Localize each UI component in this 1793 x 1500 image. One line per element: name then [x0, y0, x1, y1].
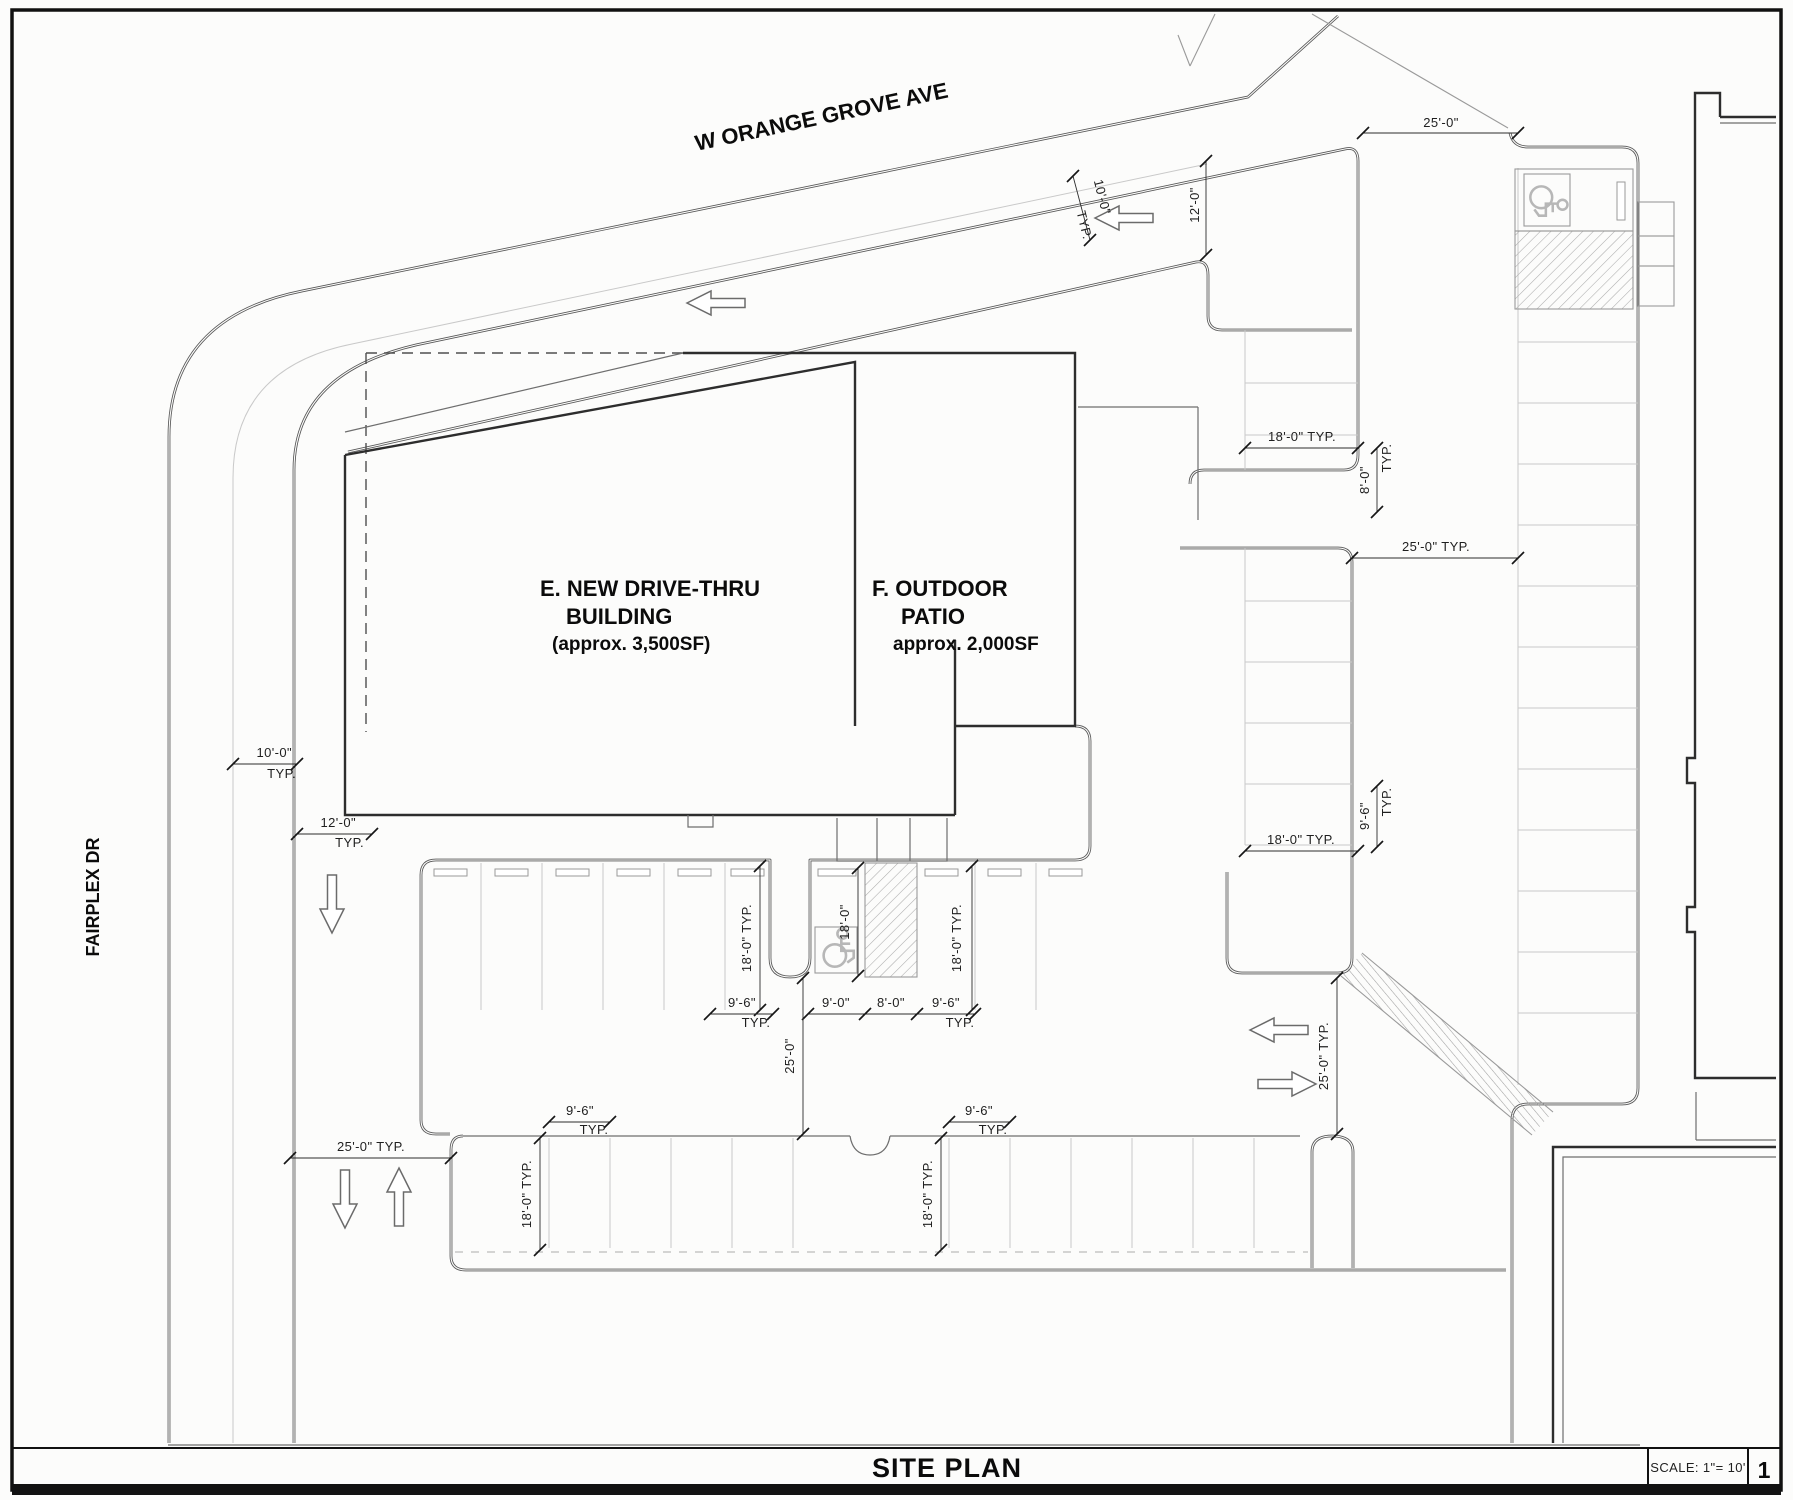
row-island-bump — [850, 1136, 890, 1155]
sheet-title: SITE PLAN — [872, 1453, 1022, 1483]
svg-text:TYP.: TYP. — [946, 1015, 975, 1030]
svg-text:18'-0" TYP.: 18'-0" TYP. — [519, 1160, 534, 1228]
stoop-1 — [1638, 202, 1674, 236]
site-plan-drawing: W ORANGE GROVE AVE FAIRPLEX DR — [0, 0, 1793, 1500]
stoop-3 — [1638, 266, 1674, 306]
wheelchair-icon-right — [1530, 186, 1567, 215]
svg-text:25'-0": 25'-0" — [782, 1038, 797, 1074]
existing-building-right — [1687, 93, 1776, 1140]
svg-text:TYP.: TYP. — [267, 766, 296, 781]
building-entry-notch — [688, 815, 713, 827]
flow-arrow-down-west-lane — [320, 875, 344, 933]
parking-row-lower — [455, 1136, 1308, 1252]
street-top-label: W ORANGE GROVE AVE — [693, 78, 950, 156]
flow-arrow-up-entrance — [387, 1168, 411, 1226]
svg-text:18'-0": 18'-0" — [837, 904, 852, 940]
building-label-line1: E. NEW DRIVE-THRU — [540, 576, 760, 601]
flow-arrow-left-east-aisle — [1250, 1018, 1308, 1042]
svg-text:18'-0" TYP.: 18'-0" TYP. — [1267, 832, 1335, 847]
street-top-orange-grove: W ORANGE GROVE AVE — [169, 14, 1508, 1443]
patio-label-line1: F. OUTDOOR — [872, 576, 1008, 601]
svg-text:25'-0" TYP.: 25'-0" TYP. — [337, 1139, 405, 1154]
svg-text:25'-0" TYP.: 25'-0" TYP. — [1316, 1022, 1331, 1090]
svg-text:TYP.: TYP. — [1074, 209, 1096, 241]
accessible-aisle-hatch-right — [1515, 231, 1633, 309]
accessible-aisle-hatch — [865, 863, 917, 977]
street-left-fairplex: FAIRPLEX DR — [83, 837, 103, 956]
svg-text:8'-0": 8'-0" — [1357, 466, 1372, 494]
sheet-number: 1 — [1758, 1457, 1771, 1483]
svg-text:8'-0": 8'-0" — [877, 995, 905, 1010]
building-label-line3: (approx. 3,500SF) — [552, 634, 710, 655]
flow-arrow-down-entrance — [333, 1170, 357, 1228]
svg-text:18'-0" TYP.: 18'-0" TYP. — [1268, 429, 1336, 444]
site-plan-sheet: W ORANGE GROVE AVE FAIRPLEX DR — [0, 0, 1793, 1500]
sheet-scale: SCALE: 1"= 10' — [1650, 1460, 1745, 1475]
site-curbs — [168, 133, 1640, 1445]
drive-thru-lane-curb — [345, 353, 683, 432]
setback-dashed-line — [366, 353, 683, 732]
svg-text:10'-0": 10'-0" — [1091, 178, 1114, 216]
svg-text:18'-0" TYP.: 18'-0" TYP. — [739, 904, 754, 972]
svg-text:TYP.: TYP. — [580, 1122, 609, 1137]
building-label-line2: BUILDING — [566, 604, 672, 629]
parking-bays-east — [1245, 330, 1358, 845]
patio-label-line3: approx. 2,000SF — [893, 634, 1039, 655]
svg-text:25'-0": 25'-0" — [1423, 115, 1459, 130]
existing-building-bottom-right — [1553, 1147, 1776, 1443]
svg-text:9'-6": 9'-6" — [965, 1103, 993, 1118]
svg-text:TYP.: TYP. — [1379, 444, 1394, 473]
svg-text:12'-0": 12'-0" — [1187, 187, 1202, 223]
flow-arrow-west-aisle — [687, 291, 745, 315]
parking-row-upper — [434, 863, 1082, 1010]
stoop-2 — [1638, 236, 1674, 266]
outdoor-patio: F. OUTDOOR PATIO approx. 2,000SF — [872, 576, 1039, 655]
svg-text:TYP.: TYP. — [1379, 788, 1394, 817]
flow-arrow-right-east-aisle — [1258, 1072, 1316, 1096]
crosswalk — [1341, 953, 1553, 1135]
flow-arrows — [320, 206, 1316, 1228]
street-left-label: FAIRPLEX DR — [83, 837, 103, 956]
patio-label-line2: PATIO — [901, 604, 965, 629]
svg-text:10'-0": 10'-0" — [256, 745, 292, 760]
svg-text:9'-6": 9'-6" — [932, 995, 960, 1010]
svg-text:18'-0" TYP.: 18'-0" TYP. — [920, 1160, 935, 1228]
parking-right-parcel — [1515, 168, 1674, 1085]
svg-text:9'-6": 9'-6" — [1357, 802, 1372, 830]
svg-text:12'-0": 12'-0" — [320, 815, 356, 830]
svg-text:TYP.: TYP. — [742, 1015, 771, 1030]
svg-text:TYP.: TYP. — [335, 835, 364, 850]
svg-text:9'-0": 9'-0" — [822, 995, 850, 1010]
svg-text:9'-6": 9'-6" — [566, 1103, 594, 1118]
building-walkway — [837, 818, 947, 861]
svg-text:9'-6": 9'-6" — [728, 995, 756, 1010]
svg-text:25'-0" TYP.: 25'-0" TYP. — [1402, 539, 1470, 554]
svg-text:TYP.: TYP. — [979, 1122, 1008, 1137]
svg-text:18'-0" TYP.: 18'-0" TYP. — [949, 904, 964, 972]
